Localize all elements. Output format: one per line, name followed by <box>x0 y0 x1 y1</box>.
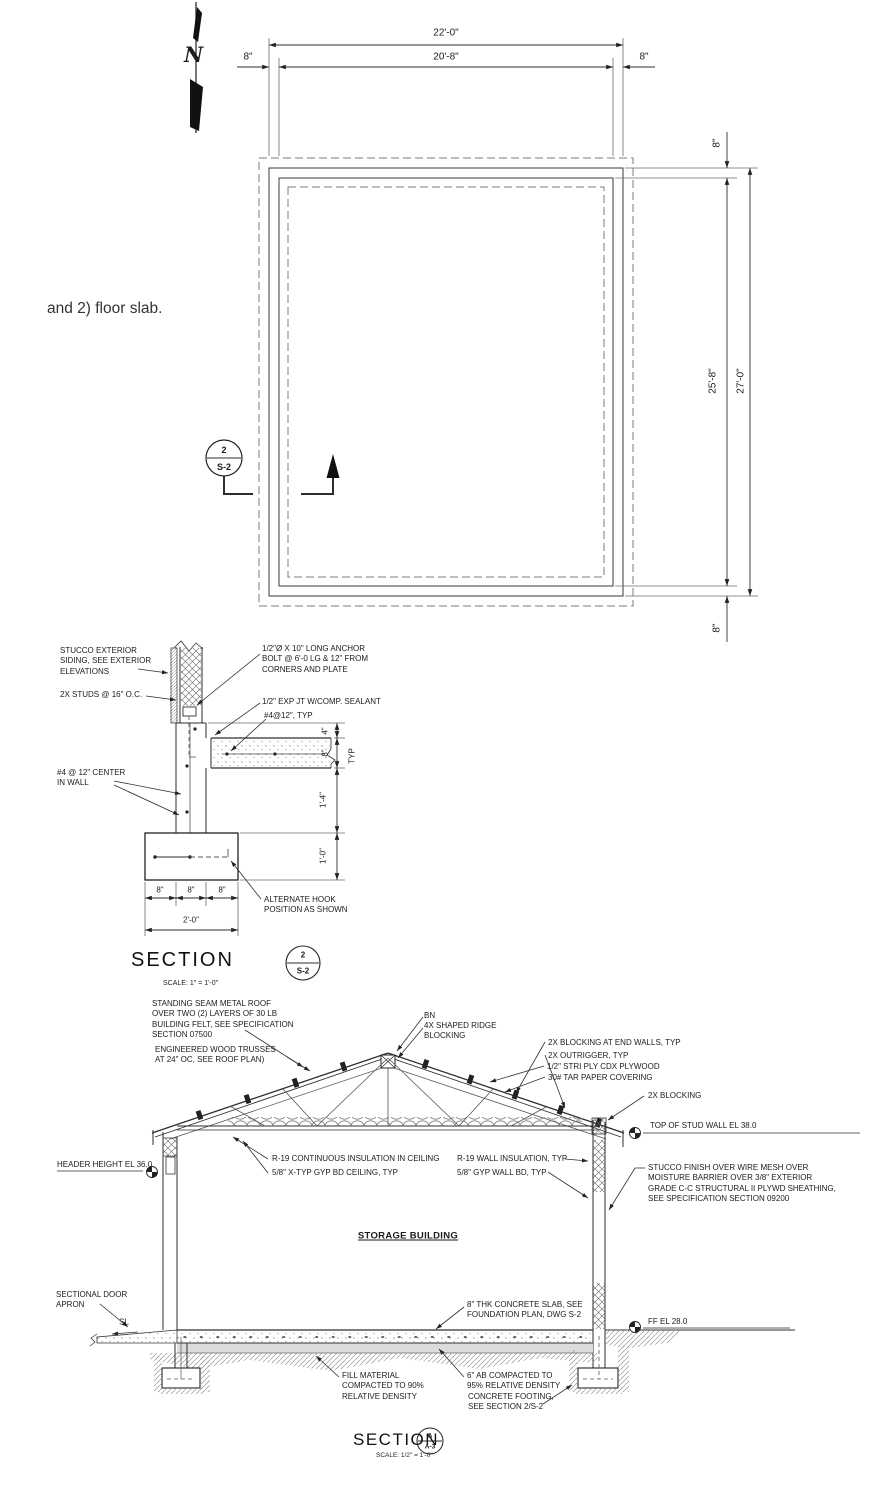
section-marker-number: 2 <box>221 445 226 455</box>
room-name-label: STORAGE BUILDING <box>358 1231 458 1242</box>
slab-label: 8" THK CONCRETE SLAB, SEE FOUNDATION PLA… <box>467 1300 583 1321</box>
dim-overall-height: 27'-0" <box>736 368 747 393</box>
concrete-footing-label: CONCRETE FOOTING, SEE SECTION 2/S-2 <box>468 1392 554 1413</box>
dim-1ft0: 1'-0" <box>319 848 328 864</box>
top-of-stud-label: TOP OF STUD WALL EL 38.0 <box>650 1121 756 1131</box>
r19-wall-label: R-19 WALL INSULATION, TYP <box>457 1154 567 1164</box>
section-title-2-number: A <box>428 1433 433 1440</box>
gyp-ceiling-label: 5/8" X-TYP GYP BD CEILING, TYP <box>272 1168 398 1178</box>
dim-footing-2ft: 2'-0" <box>183 916 199 925</box>
slope-label: SL <box>119 1318 129 1327</box>
section-title-1-number: 2 <box>301 951 305 960</box>
tar-paper-label: 30# TAR PAPER COVERING <box>548 1073 652 1083</box>
trusses-label: ENGINEERED WOOD TRUSSES AT 24" OC, SEE R… <box>155 1045 276 1066</box>
section-title-1: SECTION <box>131 949 234 972</box>
outrigger-label: 2X OUTRIGGER, TYP <box>548 1051 628 1061</box>
dim-4in: 4" <box>321 727 330 734</box>
ff-elevation-label: FF EL 28.0 <box>648 1317 687 1327</box>
alt-hook-label: ALTERNATE HOOK POSITION AS SHOWN <box>264 895 348 916</box>
stucco-finish-label: STUCCO FINISH OVER WIRE MESH OVER MOISTU… <box>648 1163 836 1205</box>
dim-overall-width: 22'-0" <box>433 28 458 39</box>
document-note-text: and 2) floor slab. <box>47 300 162 318</box>
wall-section-linework <box>114 641 345 980</box>
plywood-label: 1/2" STRI PLY CDX PLYWOOD <box>547 1062 660 1072</box>
bn-label: BN <box>424 1011 435 1021</box>
r19-ceiling-label: R-19 CONTINUOUS INSULATION IN CEILING <box>272 1154 439 1164</box>
dim-typ: TYP <box>348 748 357 764</box>
section-title-2-sheet: A-3 <box>425 1444 435 1451</box>
wall-rebar-label: #4 @ 12" CENTER IN WALL <box>57 768 125 789</box>
stucco-siding-label: STUCCO EXTERIOR SIDING, SEE EXTERIOR ELE… <box>60 646 151 677</box>
dim-footing-8b: 8" <box>187 886 194 895</box>
dim-wall-left: 8" <box>243 52 252 63</box>
section-marker-sheet: S-2 <box>217 462 231 472</box>
slab-rebar-label: #4@12", TYP <box>264 711 313 721</box>
blocking-endwalls-label: 2X BLOCKING AT END WALLS, TYP <box>548 1038 681 1048</box>
dim-inner-height: 25'-8" <box>708 368 719 393</box>
header-height-label: HEADER HEIGHT EL 36.0 <box>57 1160 152 1170</box>
door-apron-label: SECTIONAL DOOR APRON <box>56 1290 127 1311</box>
dim-1ft4: 1'-4" <box>319 792 328 808</box>
section-title-1-sheet: S-2 <box>297 967 309 976</box>
agg-base-label: 6" AB COMPACTED TO 95% RELATIVE DENSITY <box>467 1371 560 1392</box>
dim-inner-width: 20'-8" <box>433 52 458 63</box>
dim-8in: 8" <box>321 749 330 756</box>
building-section-linework <box>57 1017 860 1454</box>
drawing-sheet: and 2) floor slab. N 22'-0" 20'-8" 8" 8"… <box>0 0 869 1486</box>
dim-wall-top: 8" <box>712 138 723 147</box>
studs-label: 2X STUDS @ 16" O.C. <box>60 690 142 700</box>
dim-footing-8c: 8" <box>218 886 225 895</box>
foundation-plan-linework <box>190 2 758 642</box>
standing-seam-label: STANDING SEAM METAL ROOF OVER TWO (2) LA… <box>152 999 294 1041</box>
fill-material-label: FILL MATERIAL COMPACTED TO 90% RELATIVE … <box>342 1371 424 1402</box>
north-arrow-icon <box>190 2 203 133</box>
section-title-2-scale: SCALE: 1/2" = 1'-0" <box>376 1452 433 1459</box>
ridge-blocking-label: 4X SHAPED RIDGE BLOCKING <box>424 1021 496 1042</box>
north-letter: N <box>184 42 203 67</box>
dim-wall-right: 8" <box>639 52 648 63</box>
section-title-1-scale: SCALE: 1" = 1'-0" <box>163 980 218 987</box>
anchor-bolt-label: 1/2"Ø X 10" LONG ANCHOR BOLT @ 6'-0 LG &… <box>262 644 368 675</box>
gyp-wall-label: 5/8" GYP WALL BD, TYP <box>457 1168 547 1178</box>
dim-wall-bottom: 8" <box>712 623 723 632</box>
exp-joint-label: 1/2" EXP JT W/COMP. SEALANT <box>262 697 381 707</box>
blocking-2x-label: 2X BLOCKING <box>648 1091 701 1101</box>
drawing-linework <box>0 0 869 1486</box>
dim-footing-8a: 8" <box>156 886 163 895</box>
